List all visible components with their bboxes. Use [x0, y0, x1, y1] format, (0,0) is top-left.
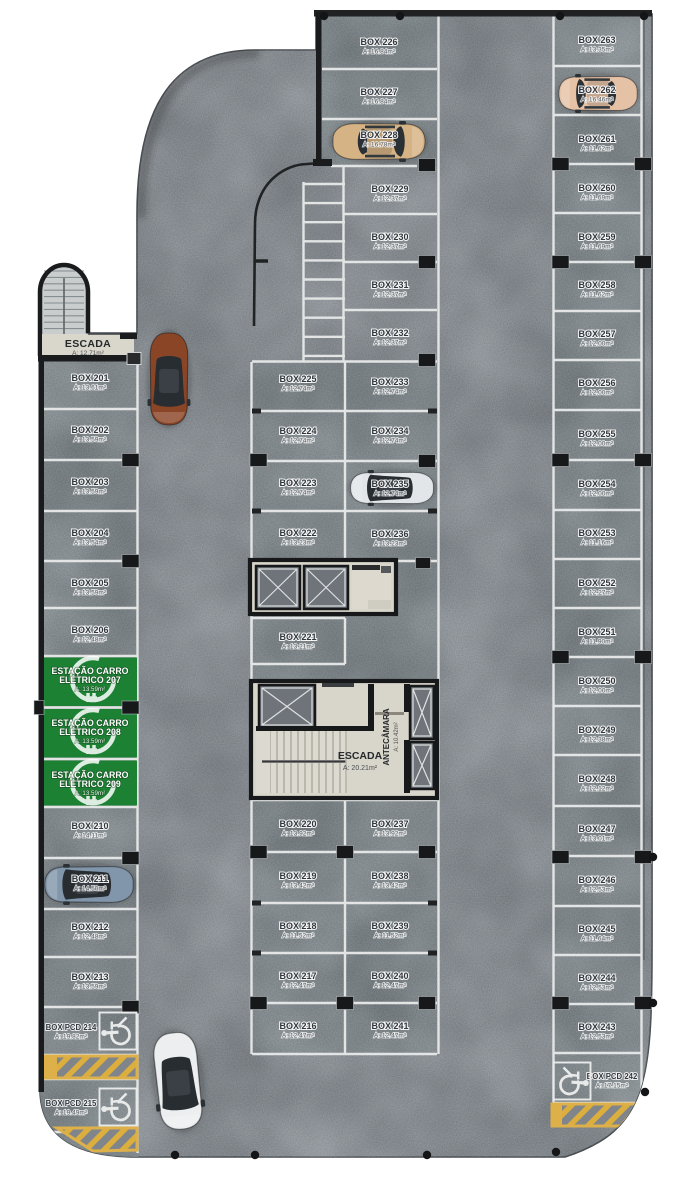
- svg-text:A: 20.21m²: A: 20.21m²: [343, 765, 378, 772]
- svg-text:A: 11.52m²: A: 11.52m²: [374, 933, 407, 940]
- svg-text:A: 12.38m²: A: 12.38m²: [581, 737, 614, 744]
- svg-text:ESCADA: ESCADA: [338, 750, 383, 762]
- svg-text:A: 14.11m²: A: 14.11m²: [74, 833, 107, 840]
- svg-text:A: 19.82m²: A: 19.82m²: [55, 1034, 88, 1041]
- svg-text:A: 13.59m²: A: 13.59m²: [75, 686, 105, 693]
- svg-text:A: 12.53m²: A: 12.53m²: [581, 985, 614, 992]
- svg-text:A: 12.74m²: A: 12.74m²: [374, 389, 407, 396]
- svg-text:BOX 216: BOX 216: [279, 1021, 316, 1031]
- svg-text:A: 10.42m²: A: 10.42m²: [394, 722, 400, 751]
- svg-text:BOX 235: BOX 235: [371, 479, 408, 489]
- svg-text:A: 12.37m²: A: 12.37m²: [374, 292, 407, 299]
- svg-text:A: 12.37m²: A: 12.37m²: [374, 196, 407, 203]
- svg-text:A: 13.54m²: A: 13.54m²: [74, 540, 107, 547]
- svg-text:ESCADA: ESCADA: [65, 338, 111, 350]
- svg-text:A: 13.59m²: A: 13.59m²: [74, 590, 107, 597]
- svg-text:A: 11.90m²: A: 11.90m²: [581, 639, 614, 646]
- svg-text:BOX 202: BOX 202: [71, 425, 108, 435]
- svg-text:A: 13.59m²: A: 13.59m²: [74, 984, 107, 991]
- svg-text:A: 12.71m²: A: 12.71m²: [72, 350, 105, 357]
- svg-text:BOX 221: BOX 221: [279, 632, 316, 642]
- svg-text:A: 12.47m²: A: 12.47m²: [374, 983, 407, 990]
- svg-text:A: 13.59m²: A: 13.59m²: [74, 489, 107, 496]
- svg-text:ELÉTRICO 208: ELÉTRICO 208: [59, 727, 121, 737]
- svg-text:BOX 259: BOX 259: [578, 232, 615, 242]
- svg-text:A: 13.35m²: A: 13.35m²: [581, 47, 614, 54]
- svg-text:BOX 233: BOX 233: [371, 377, 408, 387]
- svg-text:A: 11.69m²: A: 11.69m²: [581, 244, 614, 251]
- svg-text:A: 16.46m²: A: 16.46m²: [581, 97, 614, 104]
- svg-text:BOX 224: BOX 224: [279, 426, 316, 436]
- svg-text:A: 11.64m²: A: 11.64m²: [581, 936, 614, 943]
- svg-text:BOX 231: BOX 231: [371, 280, 408, 290]
- svg-text:A: 12.53m²: A: 12.53m²: [581, 887, 614, 894]
- svg-text:A: 12.47m²: A: 12.47m²: [374, 1033, 407, 1040]
- svg-text:BOX PCD 215: BOX PCD 215: [46, 1099, 97, 1108]
- svg-text:BOX 237: BOX 237: [371, 819, 408, 829]
- svg-text:A: 11.62m²: A: 11.62m²: [581, 146, 614, 153]
- svg-text:A: 13.42m²: A: 13.42m²: [374, 883, 407, 890]
- svg-text:BOX 219: BOX 219: [279, 871, 316, 881]
- svg-text:A: 12.47m²: A: 12.47m²: [282, 983, 315, 990]
- svg-text:BOX 220: BOX 220: [279, 819, 316, 829]
- svg-text:BOX 246: BOX 246: [578, 875, 615, 885]
- svg-text:BOX 225: BOX 225: [279, 374, 316, 384]
- svg-text:BOX 204: BOX 204: [71, 528, 108, 538]
- svg-text:A: 12.48m²: A: 12.48m²: [74, 934, 107, 941]
- svg-text:BOX 211: BOX 211: [72, 874, 109, 884]
- svg-text:A: 12.12m²: A: 12.12m²: [581, 786, 614, 793]
- svg-text:BOX PCD 242: BOX PCD 242: [587, 1072, 638, 1081]
- svg-text:A: 13.23m²: A: 13.23m²: [282, 540, 315, 547]
- svg-text:A: 12.00m²: A: 12.00m²: [581, 390, 614, 397]
- svg-text:A: 11.52m²: A: 11.52m²: [282, 933, 315, 940]
- svg-text:A: 12.00m²: A: 12.00m²: [581, 441, 614, 448]
- svg-text:BOX 252: BOX 252: [578, 578, 615, 588]
- svg-text:BOX 213: BOX 213: [71, 972, 108, 982]
- svg-text:ELÉTRICO 207: ELÉTRICO 207: [59, 675, 121, 685]
- svg-text:BOX 254: BOX 254: [578, 479, 615, 489]
- svg-text:BOX 250: BOX 250: [578, 676, 615, 686]
- svg-text:BOX 261: BOX 261: [578, 134, 615, 144]
- svg-text:BOX 239: BOX 239: [371, 921, 408, 931]
- svg-text:BOX 222: BOX 222: [279, 528, 316, 538]
- svg-text:BOX 241: BOX 241: [371, 1021, 408, 1031]
- svg-text:BOX 201: BOX 201: [71, 373, 108, 383]
- svg-text:A: 13.59m²: A: 13.59m²: [75, 790, 105, 797]
- svg-text:BOX 258: BOX 258: [578, 280, 615, 290]
- svg-text:A: 13.01m²: A: 13.01m²: [581, 836, 614, 843]
- svg-text:BOX 255: BOX 255: [578, 429, 615, 439]
- svg-text:A: 12.47m²: A: 12.47m²: [282, 1033, 315, 1040]
- svg-text:BOX 227: BOX 227: [360, 87, 397, 97]
- svg-text:A: 11.16m²: A: 11.16m²: [581, 540, 614, 547]
- svg-text:BOX 262: BOX 262: [578, 85, 615, 95]
- svg-text:BOX 205: BOX 205: [71, 578, 108, 588]
- svg-text:BOX 249: BOX 249: [578, 725, 615, 735]
- svg-text:A: 13.59m²: A: 13.59m²: [75, 738, 105, 745]
- svg-text:BOX 236: BOX 236: [371, 529, 408, 539]
- svg-text:A: 13.92m²: A: 13.92m²: [282, 831, 315, 838]
- svg-text:A: 12.00m²: A: 12.00m²: [581, 688, 614, 695]
- svg-text:BOX 232: BOX 232: [371, 328, 408, 338]
- svg-text:BOX 203: BOX 203: [71, 477, 108, 487]
- svg-text:BOX 238: BOX 238: [371, 871, 408, 881]
- svg-text:BOX 217: BOX 217: [279, 971, 316, 981]
- svg-text:A: 12.74m²: A: 12.74m²: [282, 490, 315, 497]
- svg-text:BOX 229: BOX 229: [371, 184, 408, 194]
- svg-text:BOX 245: BOX 245: [578, 924, 615, 934]
- svg-text:A: 12.37m²: A: 12.37m²: [374, 340, 407, 347]
- svg-text:A: 13.23m²: A: 13.23m²: [374, 541, 407, 548]
- svg-text:BOX 230: BOX 230: [371, 232, 408, 242]
- svg-text:A: 13.21m²: A: 13.21m²: [282, 644, 315, 651]
- svg-text:BOX 244: BOX 244: [578, 973, 615, 983]
- svg-text:BOX 206: BOX 206: [71, 625, 108, 635]
- svg-text:A: 13.59m²: A: 13.59m²: [74, 437, 107, 444]
- svg-text:ANTECÂMARA: ANTECÂMARA: [382, 708, 391, 766]
- svg-text:BOX 240: BOX 240: [371, 971, 408, 981]
- svg-text:A: 12.74m²: A: 12.74m²: [374, 438, 407, 445]
- svg-text:BOX 253: BOX 253: [578, 528, 615, 538]
- svg-text:BOX 228: BOX 228: [360, 130, 397, 140]
- svg-text:BOX 226: BOX 226: [360, 37, 397, 47]
- svg-text:BOX 260: BOX 260: [578, 183, 615, 193]
- svg-text:BOX 243: BOX 243: [578, 1022, 615, 1032]
- svg-text:A: 19.49m²: A: 19.49m²: [55, 1110, 88, 1117]
- svg-text:BOX 256: BOX 256: [578, 378, 615, 388]
- svg-text:BOX 263: BOX 263: [578, 35, 615, 45]
- svg-text:BOX PCD 214: BOX PCD 214: [46, 1023, 97, 1032]
- svg-text:A: 13.92m²: A: 13.92m²: [374, 831, 407, 838]
- svg-text:A: 11.69m²: A: 11.69m²: [581, 195, 614, 202]
- svg-text:A: 11.62m²: A: 11.62m²: [581, 292, 614, 299]
- svg-text:A: 12.37m²: A: 12.37m²: [374, 244, 407, 251]
- svg-text:A: 14.50m²: A: 14.50m²: [74, 886, 107, 893]
- svg-text:A: 12.74m²: A: 12.74m²: [282, 438, 315, 445]
- svg-text:BOX 210: BOX 210: [71, 821, 108, 831]
- svg-text:A: 12.27m²: A: 12.27m²: [581, 590, 614, 597]
- svg-text:BOX 234: BOX 234: [371, 426, 408, 436]
- svg-text:A: 16.84m²: A: 16.84m²: [363, 49, 396, 56]
- svg-text:BOX 212: BOX 212: [71, 922, 108, 932]
- svg-text:A: 12.48m²: A: 12.48m²: [74, 637, 107, 644]
- svg-text:A: 12.00m²: A: 12.00m²: [581, 341, 614, 348]
- svg-text:BOX 248: BOX 248: [578, 774, 615, 784]
- svg-text:A: 16.78m²: A: 16.78m²: [363, 142, 396, 149]
- svg-text:A: 12.53m²: A: 12.53m²: [581, 1034, 614, 1041]
- svg-text:A: 12.74m²: A: 12.74m²: [282, 386, 315, 393]
- svg-text:A: 16.84m²: A: 16.84m²: [363, 99, 396, 106]
- svg-text:A: 13.42m²: A: 13.42m²: [282, 883, 315, 890]
- svg-text:A: 12.00m²: A: 12.00m²: [581, 491, 614, 498]
- svg-text:BOX 223: BOX 223: [279, 478, 316, 488]
- svg-text:BOX 257: BOX 257: [578, 329, 615, 339]
- svg-text:A: 17.15m²: A: 17.15m²: [596, 1083, 629, 1090]
- svg-text:BOX 218: BOX 218: [279, 921, 316, 931]
- svg-text:BOX 247: BOX 247: [578, 824, 615, 834]
- svg-text:ELÉTRICO 209: ELÉTRICO 209: [59, 779, 121, 789]
- svg-text:A: 13.61m²: A: 13.61m²: [74, 385, 107, 392]
- svg-text:A: 12.74m²: A: 12.74m²: [374, 491, 407, 498]
- svg-text:BOX 251: BOX 251: [578, 627, 615, 637]
